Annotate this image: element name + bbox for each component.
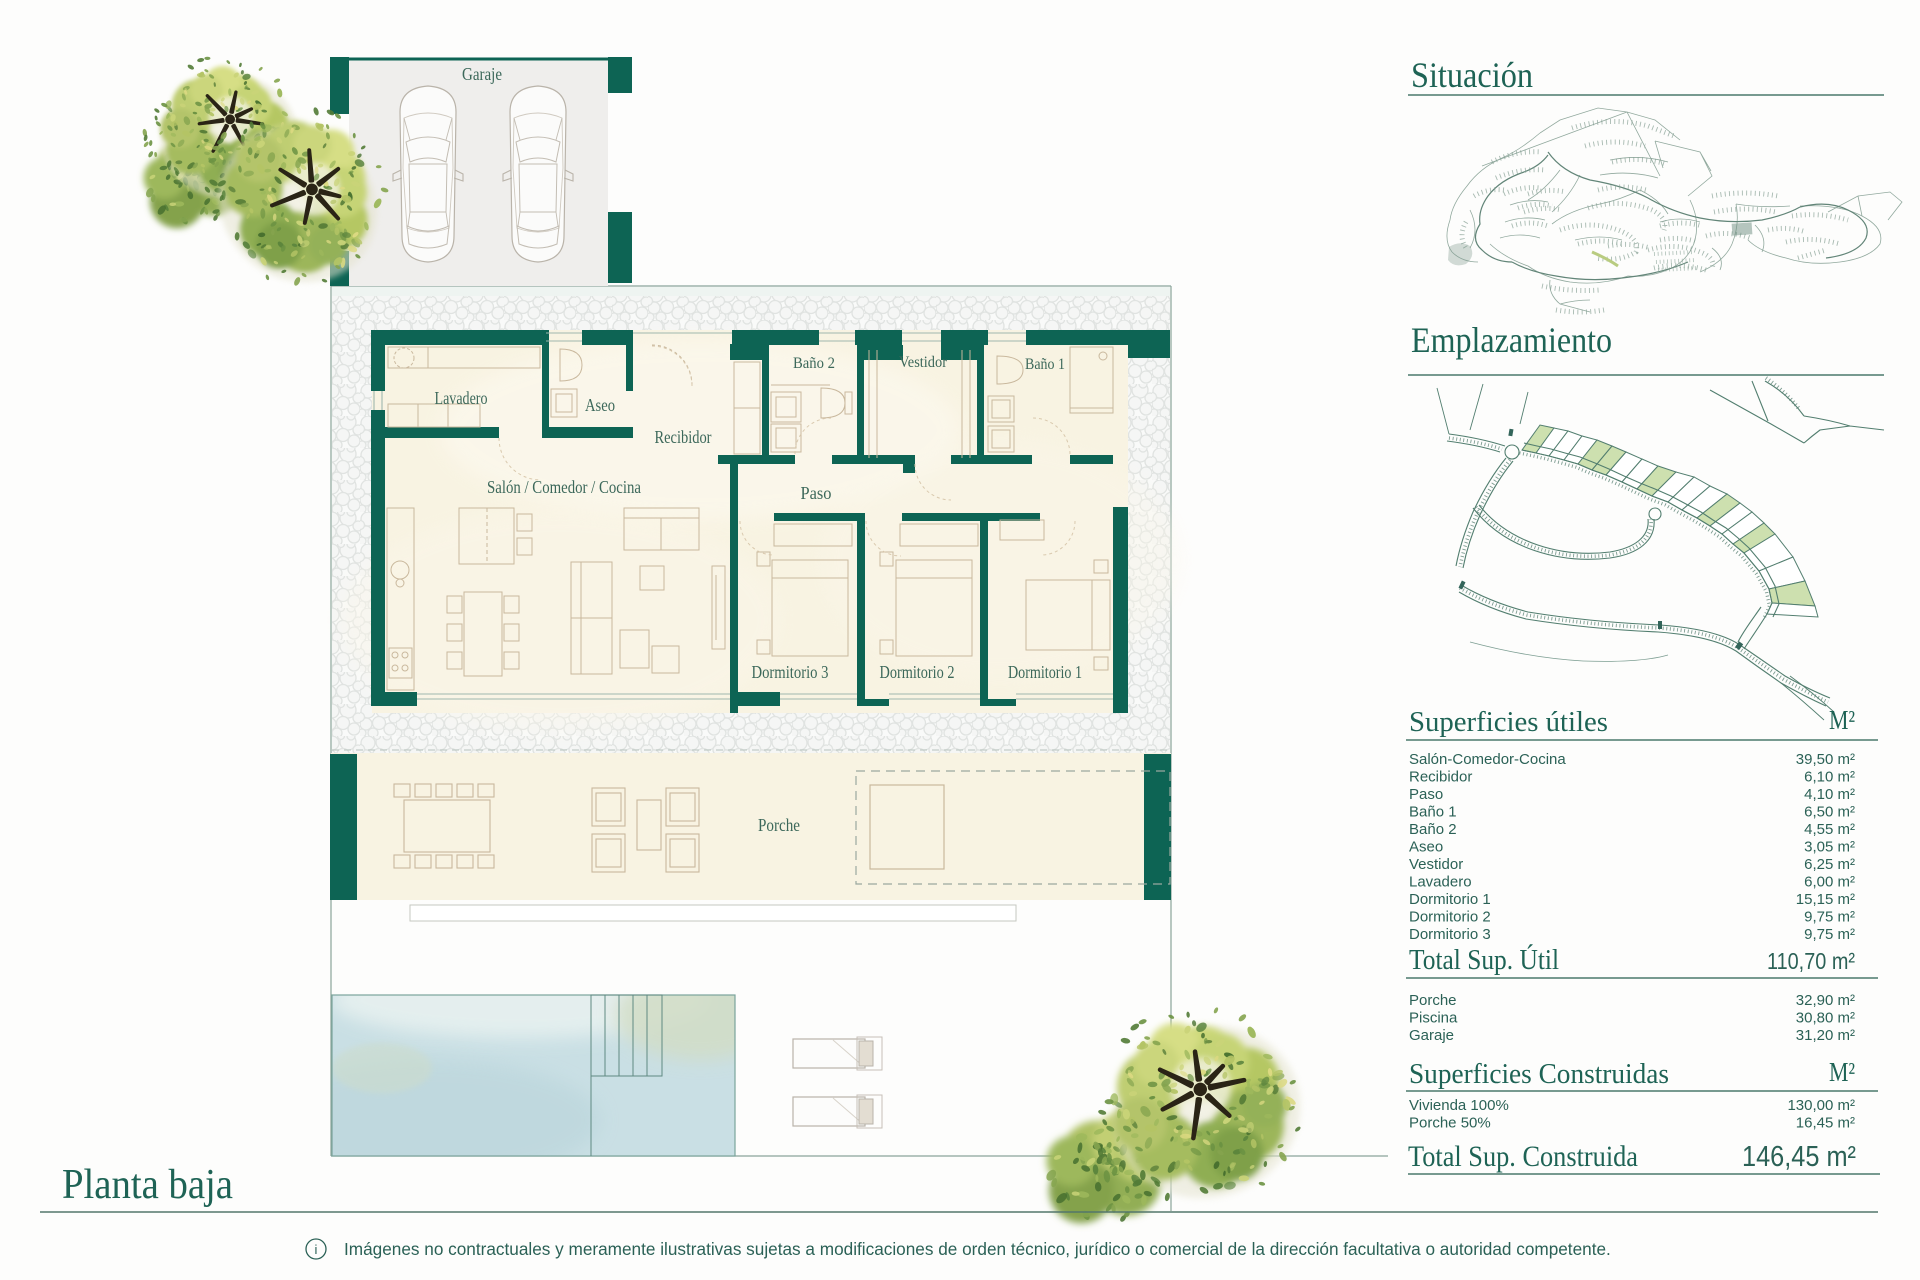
- svg-text:M²: M²: [1829, 705, 1855, 735]
- svg-text:Baño 2: Baño 2: [793, 355, 835, 372]
- svg-text:Superficies útiles: Superficies útiles: [1409, 706, 1608, 738]
- svg-text:Lavadero: Lavadero: [435, 388, 488, 408]
- svg-text:Piscina: Piscina: [1409, 1010, 1458, 1027]
- svg-text:Baño 1: Baño 1: [1025, 356, 1065, 373]
- svg-text:6,50 m²: 6,50 m²: [1804, 804, 1855, 821]
- svg-text:i: i: [315, 1242, 318, 1257]
- svg-text:9,75 m²: 9,75 m²: [1804, 909, 1855, 926]
- svg-text:9,75 m²: 9,75 m²: [1804, 926, 1855, 943]
- svg-text:32,90 m²: 32,90 m²: [1796, 992, 1855, 1009]
- svg-text:30,80 m²: 30,80 m²: [1796, 1010, 1855, 1027]
- svg-text:Dormitorio 1: Dormitorio 1: [1008, 662, 1082, 682]
- svg-text:Porche: Porche: [1409, 992, 1457, 1009]
- svg-text:Baño 2: Baño 2: [1409, 821, 1457, 838]
- svg-text:Dormitorio 1: Dormitorio 1: [1409, 891, 1491, 908]
- svg-text:Garaje: Garaje: [462, 64, 502, 84]
- svg-text:Recibidor: Recibidor: [1409, 769, 1472, 786]
- svg-text:110,70 m²: 110,70 m²: [1767, 948, 1855, 974]
- svg-text:Dormitorio 2: Dormitorio 2: [1409, 909, 1491, 926]
- svg-text:Garaje: Garaje: [1409, 1027, 1454, 1044]
- svg-text:Porche: Porche: [758, 815, 800, 835]
- svg-text:Baño 1: Baño 1: [1409, 804, 1457, 821]
- svg-text:Recibidor: Recibidor: [655, 427, 712, 447]
- svg-text:Paso: Paso: [1409, 786, 1443, 803]
- svg-text:Situación: Situación: [1411, 55, 1533, 95]
- svg-text:Salón-Comedor-Cocina: Salón-Comedor-Cocina: [1409, 751, 1566, 768]
- svg-text:M²: M²: [1829, 1057, 1855, 1087]
- svg-text:Porche 50%: Porche 50%: [1409, 1115, 1491, 1132]
- svg-text:Vestidor: Vestidor: [899, 354, 948, 371]
- svg-text:Lavadero: Lavadero: [1409, 874, 1472, 891]
- svg-text:130,00 m²: 130,00 m²: [1787, 1097, 1855, 1114]
- svg-text:Vivienda 100%: Vivienda 100%: [1409, 1097, 1509, 1114]
- svg-text:Total Sup. Útil: Total Sup. Útil: [1409, 945, 1559, 976]
- svg-text:4,55 m²: 4,55 m²: [1804, 821, 1855, 838]
- svg-text:Dormitorio 2: Dormitorio 2: [880, 662, 955, 682]
- svg-text:Total Sup. Construida: Total Sup. Construida: [1408, 1140, 1638, 1173]
- svg-text:39,50 m²: 39,50 m²: [1796, 751, 1855, 768]
- svg-text:Imágenes no contractuales y me: Imágenes no contractuales y meramente il…: [344, 1239, 1611, 1259]
- svg-text:6,25 m²: 6,25 m²: [1804, 856, 1855, 873]
- svg-text:Superficies Construidas: Superficies Construidas: [1409, 1058, 1669, 1090]
- svg-text:Paso: Paso: [801, 483, 832, 503]
- svg-text:15,15 m²: 15,15 m²: [1796, 891, 1855, 908]
- svg-text:31,20 m²: 31,20 m²: [1796, 1027, 1855, 1044]
- svg-text:Salón / Comedor / Cocina: Salón / Comedor / Cocina: [487, 477, 641, 497]
- svg-text:146,45 m²: 146,45 m²: [1742, 1141, 1856, 1173]
- svg-text:Planta baja: Planta baja: [62, 1162, 233, 1208]
- svg-text:Aseo: Aseo: [1409, 839, 1443, 856]
- svg-text:Dormitorio 3: Dormitorio 3: [1409, 926, 1491, 943]
- svg-text:Vestidor: Vestidor: [1409, 856, 1463, 873]
- svg-text:6,00 m²: 6,00 m²: [1804, 874, 1855, 891]
- svg-text:4,10 m²: 4,10 m²: [1804, 786, 1855, 803]
- svg-text:3,05 m²: 3,05 m²: [1804, 839, 1855, 856]
- svg-text:Dormitorio 3: Dormitorio 3: [752, 662, 829, 682]
- svg-text:6,10 m²: 6,10 m²: [1804, 769, 1855, 786]
- svg-text:Emplazamiento: Emplazamiento: [1411, 320, 1612, 360]
- svg-text:16,45 m²: 16,45 m²: [1796, 1115, 1855, 1132]
- svg-text:Aseo: Aseo: [585, 395, 615, 415]
